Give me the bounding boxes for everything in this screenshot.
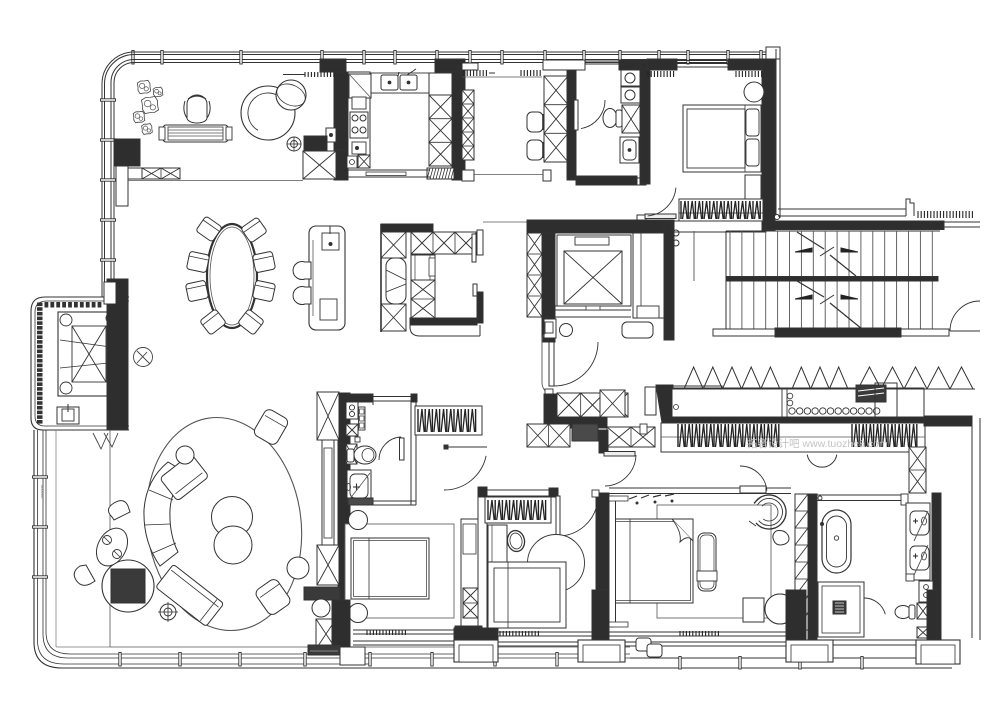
svg-text:000000: 000000 <box>40 485 45 499</box>
svg-text:拓者设计吧 www.tuozhe8.com: 拓者设计吧 www.tuozhe8.com <box>747 437 888 450</box>
